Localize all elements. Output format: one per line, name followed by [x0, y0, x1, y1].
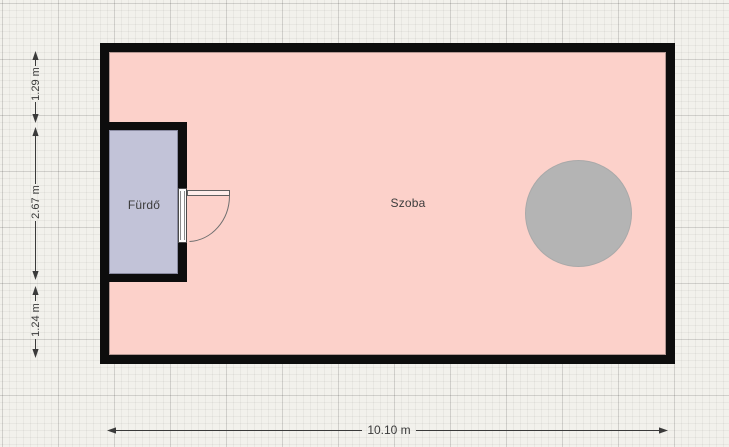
dimension-label-2-67[interactable]: 2.67 m — [30, 185, 42, 219]
room-label-furdo[interactable]: Fürdő — [128, 198, 160, 212]
dimension-label-10-10[interactable]: 10.10 m — [367, 423, 410, 437]
dimension-label-1-29[interactable]: 1.29 m — [30, 67, 42, 101]
floor-plan-canvas: Szoba Fürdő 1.29 m 2.67 m 1.24 m 10.10 m — [0, 0, 729, 447]
room-label-szoba[interactable]: Szoba — [390, 196, 425, 210]
plan-annotations-layer — [0, 0, 729, 447]
door-swing[interactable] — [188, 191, 230, 242]
dimension-label-1-24[interactable]: 1.24 m — [30, 303, 42, 337]
